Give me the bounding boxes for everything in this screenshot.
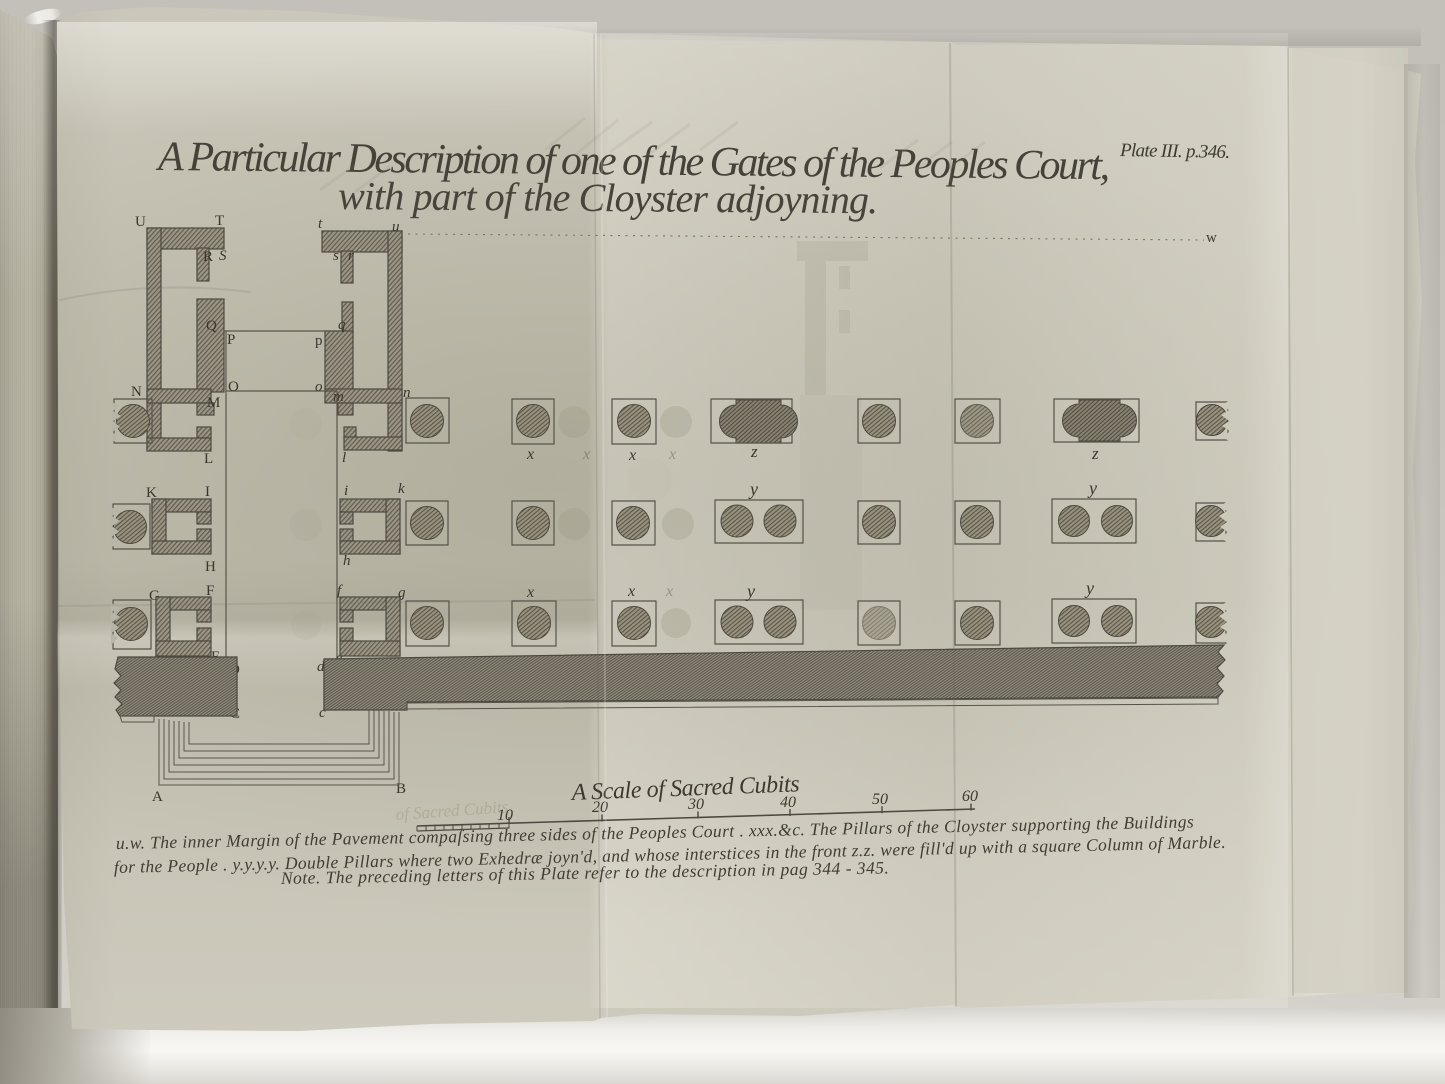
svg-text:Q: Q: [206, 318, 217, 334]
svg-text:o: o: [315, 379, 323, 395]
svg-text:x: x: [627, 583, 635, 600]
svg-text:q: q: [338, 317, 346, 333]
svg-text:z: z: [1091, 444, 1099, 463]
svg-text:I: I: [205, 484, 210, 500]
svg-text:T: T: [215, 213, 224, 229]
svg-text:w: w: [1206, 230, 1217, 246]
svg-text:40: 40: [780, 794, 796, 811]
svg-text:of Sacred Cubits: of Sacred Cubits: [395, 797, 509, 824]
svg-text:l: l: [342, 450, 346, 466]
svg-text:u: u: [392, 219, 400, 235]
svg-text:r: r: [348, 248, 354, 264]
svg-text:M: M: [207, 395, 220, 411]
svg-text:10: 10: [497, 807, 513, 824]
svg-text:x: x: [582, 446, 590, 463]
svg-text:L: L: [204, 451, 213, 467]
svg-text:m: m: [333, 389, 344, 405]
svg-text:y: y: [745, 581, 755, 601]
svg-text:y: y: [1084, 578, 1094, 598]
svg-text:x: x: [526, 446, 534, 463]
svg-text:x: x: [628, 447, 636, 464]
svg-text:30: 30: [687, 796, 704, 813]
svg-text:t: t: [318, 216, 323, 232]
svg-text:H: H: [205, 559, 216, 575]
svg-text:P: P: [227, 332, 235, 348]
svg-text:x: x: [668, 446, 676, 463]
svg-text:U: U: [135, 214, 146, 230]
svg-text:N: N: [131, 384, 142, 400]
svg-text:with part of the Cloyster adjo: with part of the Cloyster adjoyning.: [338, 173, 878, 222]
svg-text:s: s: [333, 248, 339, 264]
svg-text:Plate III. p.346.: Plate III. p.346.: [1119, 140, 1230, 163]
svg-text:h: h: [343, 553, 351, 569]
svg-text:i: i: [344, 483, 348, 499]
svg-text:O: O: [228, 379, 239, 395]
svg-text:z: z: [750, 442, 758, 461]
svg-text:y: y: [1087, 478, 1097, 498]
svg-text:50: 50: [872, 791, 888, 808]
svg-text:y: y: [748, 479, 758, 499]
svg-text:k: k: [398, 481, 405, 497]
svg-text:R: R: [203, 249, 213, 265]
svg-text:p: p: [315, 333, 323, 349]
svg-text:x: x: [665, 583, 673, 600]
svg-text:B: B: [396, 781, 406, 797]
svg-text:x: x: [526, 584, 534, 601]
svg-text:60: 60: [962, 788, 978, 805]
svg-text:S: S: [219, 248, 227, 264]
svg-text:A: A: [152, 789, 163, 805]
